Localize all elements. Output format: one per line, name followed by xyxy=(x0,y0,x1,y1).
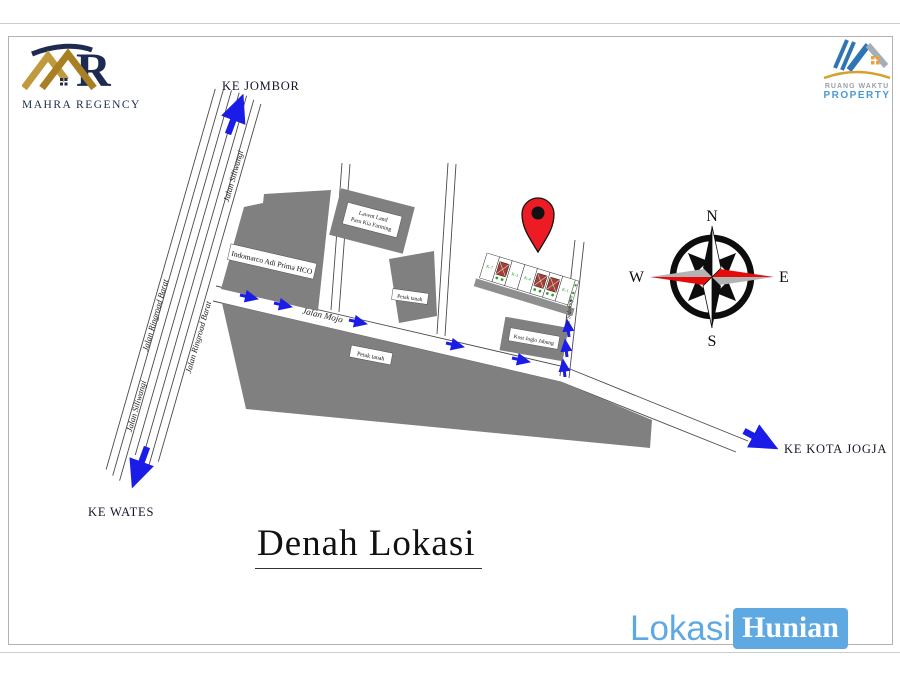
page-title: Denah Lokasi xyxy=(255,522,482,569)
page: R MAHRA REGENCY RUANG WAKTU PROPERTY xyxy=(0,0,900,675)
watermark-word-lokasi: Lokasi xyxy=(630,609,731,649)
compass-south-label: S xyxy=(708,333,717,350)
road-label-ringroad-right: Jalan Ringroad Barat xyxy=(183,299,213,374)
road-label-siliwangi-upper: Jalan Siliwangi xyxy=(221,149,245,203)
petak-tanah-tall-building xyxy=(389,251,437,323)
direction-label-jombor: KE JOMBOR xyxy=(222,79,300,93)
road-label-ringroad-left: Jalan Ringroad Barat xyxy=(140,277,170,352)
compass-west-label: W xyxy=(629,269,645,286)
petak-tanah-long-building xyxy=(222,303,652,448)
arrow-ke-jombor-icon xyxy=(228,113,236,134)
road-label-mojo: Jalan Mojo xyxy=(301,306,344,325)
direction-label-wates: KE WATES xyxy=(88,505,154,519)
arrow-ke-wates-icon xyxy=(139,447,147,469)
compass-rose-icon: N S W E xyxy=(629,208,789,350)
site-plan: K-7 K-3 K-4 K-1 xyxy=(474,252,583,316)
compass-north-label: N xyxy=(706,208,718,225)
direction-label-kota-jogja: KE KOTA JOGJA xyxy=(784,442,887,456)
compass-east-label: E xyxy=(779,269,789,286)
arrow-ke-kota-jogja-icon xyxy=(744,431,760,440)
lavent-land-building: Lavent Land Paru Kia Farming xyxy=(329,188,415,253)
location-pin-icon xyxy=(522,198,554,252)
location-map: Lavent Land Paru Kia Farming Petak tanah… xyxy=(0,0,900,675)
watermark-word-hunian: Hunian xyxy=(733,608,848,649)
side-road-east xyxy=(437,163,456,336)
lokasi-hunian-watermark: Lokasi Hunian xyxy=(630,608,848,649)
road-label-siliwangi-lower: Jalan Siliwangi xyxy=(124,379,148,433)
